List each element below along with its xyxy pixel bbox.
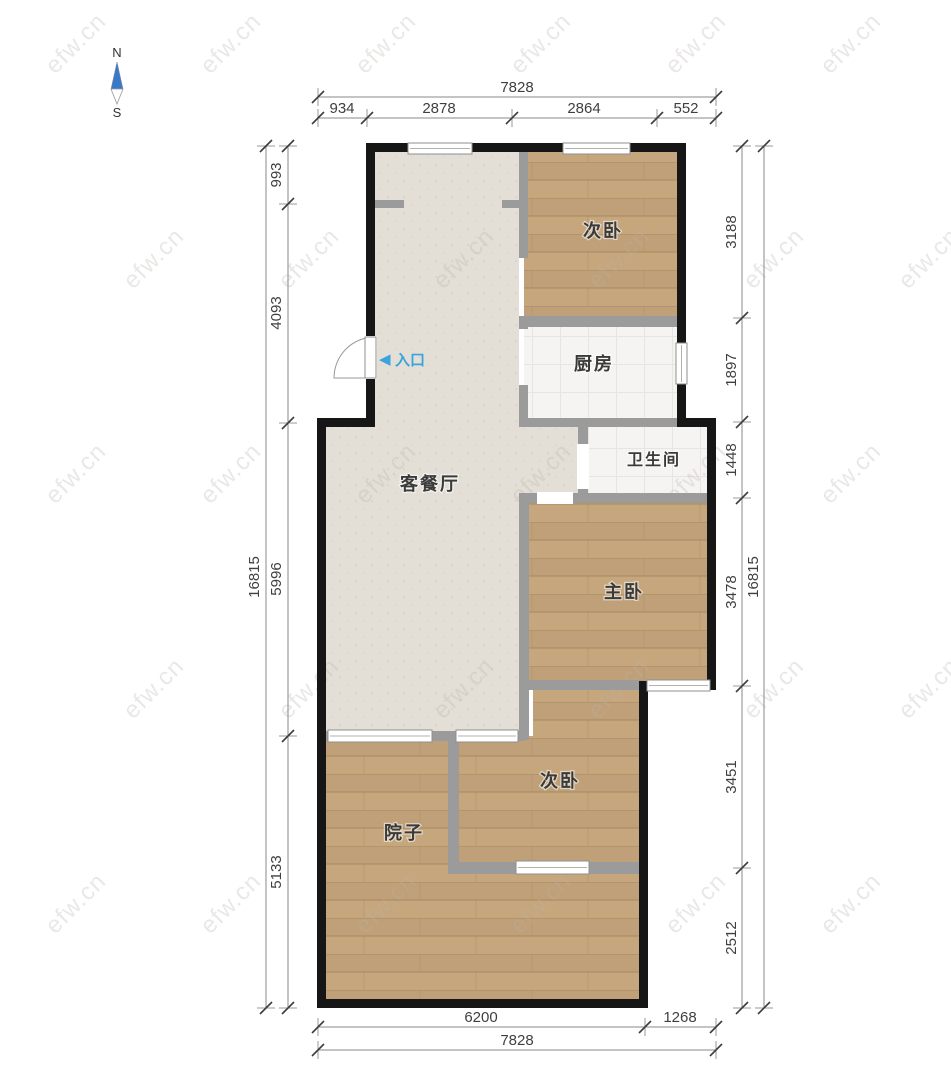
dim-top-total: 7828 — [500, 79, 533, 96]
room-label-bedroom-top: 次卧 — [583, 220, 623, 241]
dim-top-seg: 2864 — [567, 100, 600, 117]
window — [516, 861, 589, 874]
watermark-text: efw.cn — [893, 223, 951, 294]
room-label-living-dining: 客餐厅 — [400, 473, 460, 494]
compass-needle-north — [111, 62, 123, 89]
entrance-label: 入口 — [395, 352, 425, 369]
dim-top-seg: 2878 — [422, 100, 455, 117]
watermark-text: efw.cn — [195, 868, 266, 939]
window — [408, 143, 472, 154]
watermark-text: efw.cn — [118, 223, 189, 294]
dim-right-seg: 1897 — [723, 353, 740, 386]
dim-right-seg: 3451 — [723, 760, 740, 793]
entrance-door-leaf — [365, 337, 376, 378]
watermark-text: efw.cn — [815, 868, 886, 939]
room-label-kitchen: 厨房 — [574, 353, 614, 374]
watermark-text: efw.cn — [40, 438, 111, 509]
watermark-text: efw.cn — [40, 8, 111, 79]
watermark-text: efw.cn — [195, 438, 266, 509]
watermark-text: efw.cn — [40, 868, 111, 939]
window — [328, 730, 432, 742]
room-label-bedroom-bottom: 次卧 — [540, 770, 580, 791]
dim-bottom-total: 7828 — [500, 1032, 533, 1049]
watermark-text: efw.cn — [505, 8, 576, 79]
compass-north-label: N — [112, 45, 121, 60]
floorplan-svg: efw.cnefw.cnefw.cnefw.cnefw.cnefw.cnefw.… — [0, 0, 951, 1073]
dim-left-seg: 5133 — [268, 855, 285, 888]
dim-left-seg: 5996 — [268, 562, 285, 595]
room-label-master-bedroom: 主卧 — [604, 581, 644, 602]
entrance-door — [334, 336, 377, 379]
dim-right-seg: 3478 — [723, 575, 740, 608]
watermark-text: efw.cn — [273, 223, 344, 294]
dim-left-seg: 4093 — [268, 296, 285, 329]
entrance-arrow-icon: ◀ — [379, 351, 391, 368]
master-door-opening — [537, 492, 573, 504]
watermark-text: efw.cn — [660, 868, 731, 939]
window — [676, 343, 687, 384]
compass-needle-south — [111, 89, 123, 104]
watermark-text: efw.cn — [350, 8, 421, 79]
dim-top-seg: 934 — [329, 100, 354, 117]
watermark-text: efw.cn — [195, 8, 266, 79]
watermark-text: efw.cn — [815, 8, 886, 79]
dim-right-seg: 3188 — [723, 215, 740, 248]
room-label-bathroom: 卫生间 — [627, 450, 681, 469]
dim-bottom-seg: 1268 — [663, 1009, 696, 1026]
dim-right-seg: 2512 — [723, 921, 740, 954]
dim-left-seg: 993 — [268, 162, 285, 187]
floorplan-page: efw.cnefw.cnefw.cnefw.cnefw.cnefw.cnefw.… — [0, 0, 951, 1073]
watermark-text: efw.cn — [738, 653, 809, 724]
watermark-text: efw.cn — [815, 438, 886, 509]
compass-south-label: S — [113, 105, 122, 120]
dim-left-total: 16815 — [246, 556, 263, 598]
room-label-yard: 院子 — [384, 822, 424, 843]
compass: N S — [111, 45, 123, 120]
dim-top-seg: 552 — [673, 100, 698, 117]
dim-bottom-seg: 6200 — [464, 1009, 497, 1026]
watermark-text: efw.cn — [118, 653, 189, 724]
dim-right-total: 16815 — [745, 556, 762, 598]
watermark-text: efw.cn — [738, 223, 809, 294]
dim-right-seg: 1448 — [723, 443, 740, 476]
watermark-text: efw.cn — [893, 653, 951, 724]
window — [647, 680, 710, 691]
window — [563, 143, 630, 154]
bathroom-door-opening — [577, 444, 589, 489]
watermark-text: efw.cn — [660, 8, 731, 79]
floors — [322, 150, 711, 1003]
window — [456, 730, 518, 742]
